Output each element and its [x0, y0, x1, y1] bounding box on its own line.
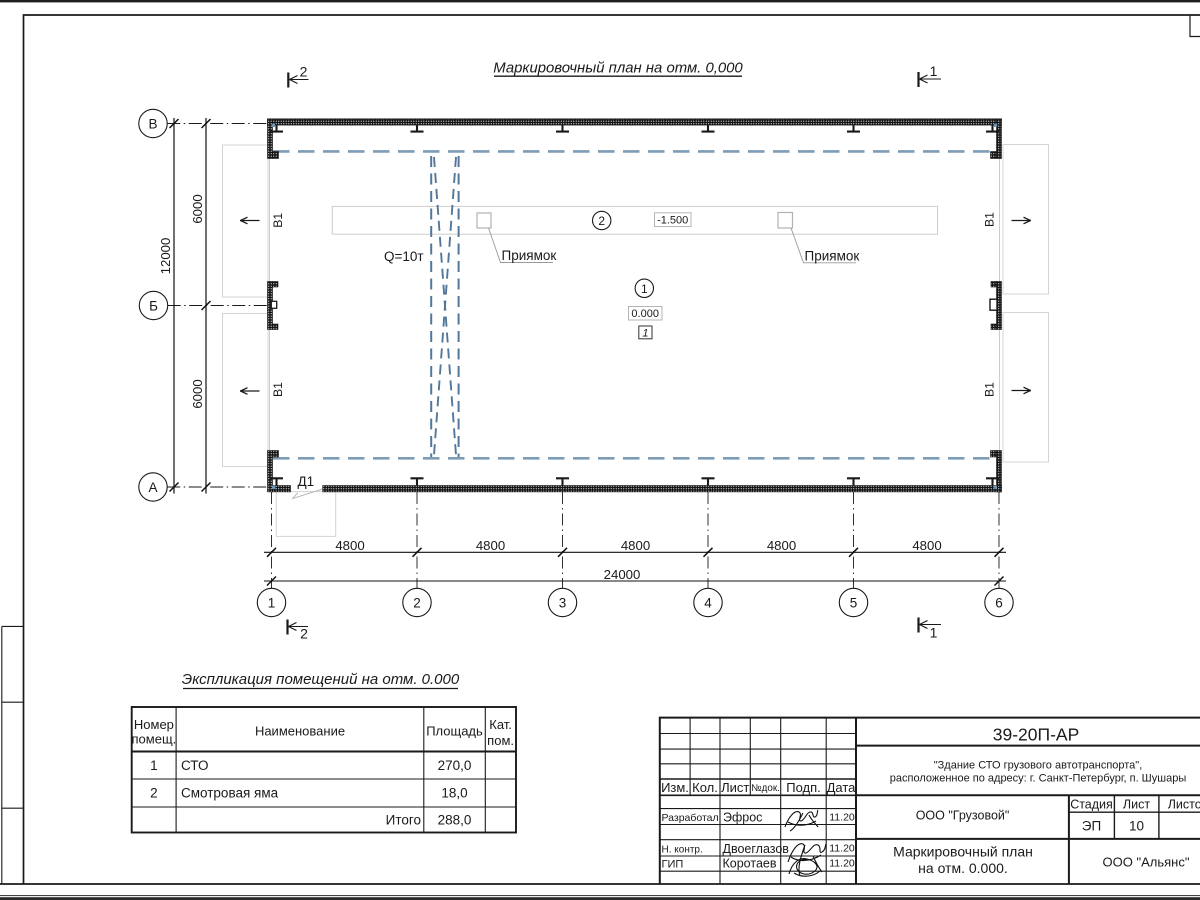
svg-text:11.20: 11.20 [829, 843, 855, 855]
svg-text:3: 3 [559, 596, 567, 611]
svg-text:Лист: Лист [721, 780, 749, 795]
svg-text:В: В [148, 117, 157, 132]
svg-text:2: 2 [150, 786, 158, 801]
svg-text:1: 1 [641, 282, 648, 296]
svg-text:Кол.: Кол. [692, 780, 718, 795]
svg-text:Кат.: Кат. [489, 717, 512, 732]
svg-text:пом.: пом. [487, 733, 514, 748]
svg-text:Стадия: Стадия [1070, 798, 1113, 812]
svg-text:Разработал: Разработал [662, 812, 719, 824]
svg-text:ЭП: ЭП [1082, 819, 1101, 834]
svg-text:4: 4 [704, 596, 712, 611]
svg-text:4800: 4800 [767, 538, 796, 553]
svg-text:Итого: Итого [386, 813, 421, 828]
svg-text:Листов: Листов [1168, 798, 1200, 812]
svg-text:помещ.: помещ. [132, 732, 177, 747]
svg-text:1: 1 [930, 625, 938, 641]
svg-text:ООО "Грузовой": ООО "Грузовой" [916, 809, 1010, 823]
svg-text:Лист: Лист [1123, 798, 1150, 812]
svg-text:Маркировочный план: Маркировочный план [893, 844, 1033, 860]
svg-text:"Здание СТО грузового автотран: "Здание СТО грузового автотранспорта", [934, 760, 1143, 772]
svg-text:5: 5 [850, 596, 858, 611]
svg-text:Площадь: Площадь [426, 724, 483, 739]
svg-text:Б: Б [149, 299, 158, 314]
svg-text:2: 2 [598, 214, 605, 228]
svg-text:Экспликация помещений на отм.: Экспликация помещений на отм. 0.000 [182, 671, 460, 688]
svg-text:6000: 6000 [190, 379, 205, 408]
svg-text:Смотровая яма: Смотровая яма [181, 786, 279, 801]
svg-text:ООО "Альянс": ООО "Альянс" [1103, 855, 1190, 870]
svg-text:2: 2 [413, 596, 421, 611]
svg-text:4800: 4800 [335, 538, 364, 553]
svg-text:Наименование: Наименование [255, 724, 345, 739]
svg-text:288,0: 288,0 [438, 813, 472, 828]
svg-text:Дата: Дата [827, 780, 857, 795]
svg-text:0.000: 0.000 [631, 308, 659, 320]
svg-text:18,0: 18,0 [441, 786, 467, 801]
svg-text:В1: В1 [983, 382, 997, 397]
svg-text:В1: В1 [983, 212, 997, 227]
svg-text:В1: В1 [271, 213, 285, 228]
svg-text:6: 6 [995, 596, 1003, 611]
svg-text:расположенное по адресу: г. Са: расположенное по адресу: г. Санкт-Петерб… [890, 773, 1187, 785]
svg-text:10: 10 [1129, 819, 1144, 834]
svg-text:Приямок: Приямок [805, 249, 860, 264]
svg-text:Двоеглазов: Двоеглазов [723, 842, 790, 856]
svg-text:1: 1 [930, 63, 938, 79]
svg-text:12000: 12000 [158, 238, 173, 275]
svg-text:Подп.: Подп. [786, 780, 821, 795]
svg-text:Маркировочный план на отм. 0,0: Маркировочный план на отм. 0,000 [493, 60, 743, 76]
svg-text:Номер: Номер [134, 717, 174, 732]
svg-text:СТО: СТО [181, 758, 208, 773]
svg-text:11.20: 11.20 [829, 812, 855, 824]
svg-text:1: 1 [268, 596, 276, 611]
svg-text:Н. контр.: Н. контр. [662, 845, 703, 856]
svg-text:2: 2 [300, 64, 308, 80]
svg-text:4800: 4800 [912, 538, 941, 553]
svg-text:А: А [148, 480, 157, 495]
svg-text:270,0: 270,0 [438, 758, 472, 773]
svg-text:2: 2 [300, 625, 308, 641]
svg-text:№док.: №док. [751, 783, 780, 794]
svg-text:ГИП: ГИП [662, 859, 684, 871]
svg-text:Коротаев: Коротаев [723, 857, 777, 871]
svg-text:Эфрос: Эфрос [723, 811, 762, 825]
svg-text:6000: 6000 [190, 194, 205, 223]
svg-text:Q=10т: Q=10т [384, 249, 424, 264]
svg-text:1: 1 [150, 758, 158, 773]
svg-text:4800: 4800 [621, 538, 650, 553]
svg-text:Приямок: Приямок [502, 248, 557, 263]
svg-text:11.20: 11.20 [829, 858, 855, 870]
svg-text:В1: В1 [271, 382, 285, 397]
svg-text:4800: 4800 [476, 538, 505, 553]
svg-text:Д1: Д1 [298, 474, 315, 489]
svg-text:-1.500: -1.500 [657, 214, 688, 226]
svg-text:1: 1 [642, 327, 648, 339]
svg-text:на отм. 0.000.: на отм. 0.000. [918, 860, 1008, 876]
svg-text:39-20П-АР: 39-20П-АР [993, 725, 1080, 745]
svg-text:Изм.: Изм. [661, 780, 689, 795]
svg-text:24000: 24000 [604, 567, 641, 582]
